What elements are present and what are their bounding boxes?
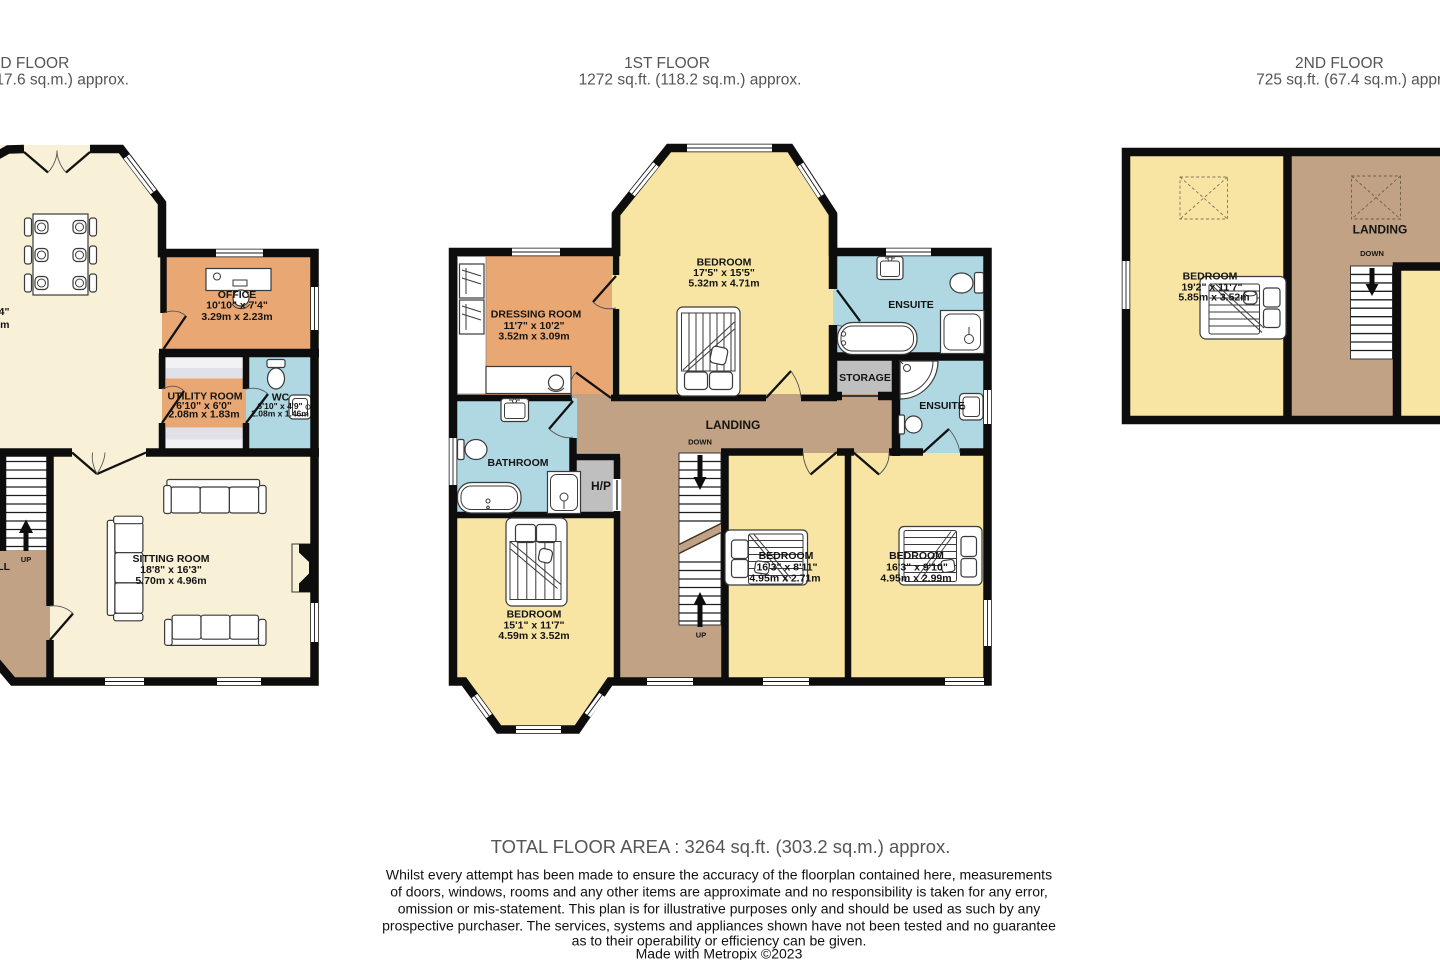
svg-text:TOTAL FLOOR AREA : 3264 sq.ft.: TOTAL FLOOR AREA : 3264 sq.ft. (303.2 sq… (491, 836, 951, 857)
svg-text:ENSUITE: ENSUITE (919, 400, 965, 412)
svg-text:3.29m x 2.23m: 3.29m x 2.23m (201, 311, 272, 323)
svg-text:10'10" x 7'4": 10'10" x 7'4" (206, 300, 268, 312)
svg-text:3.52m x 3.09m: 3.52m x 3.09m (498, 331, 569, 343)
svg-text:1267 sq.ft. (117.6 sq.m.) appr: 1267 sq.ft. (117.6 sq.m.) approx. (0, 72, 129, 89)
svg-text:1272 sq.ft. (118.2 sq.m.) appr: 1272 sq.ft. (118.2 sq.m.) approx. (579, 72, 802, 89)
svg-text:2.08m x 1.83m: 2.08m x 1.83m (168, 408, 239, 420)
svg-text:5.85m x 3.52m: 5.85m x 3.52m (1178, 292, 1249, 304)
svg-text:DOWN: DOWN (688, 438, 712, 447)
svg-text:5.70m x 4.96m: 5.70m x 4.96m (135, 575, 206, 587)
svg-text:ENSUITE: ENSUITE (888, 299, 934, 311)
svg-text:STORAGE: STORAGE (839, 372, 891, 384)
svg-text:4.00m x 3.76m: 4.00m x 3.76m (0, 319, 10, 331)
svg-text:LANDING: LANDING (706, 418, 761, 432)
svg-text:HALL: HALL (0, 561, 11, 573)
svg-text:Whilst every attempt has been: Whilst every attempt has been made to en… (386, 867, 1052, 883)
svg-text:LANDING: LANDING (1353, 223, 1408, 237)
svg-text:UP: UP (696, 631, 706, 640)
svg-text:13'1" x 12'4": 13'1" x 12'4" (0, 306, 10, 318)
svg-text:prospective purchaser. The ser: prospective purchaser. The services, sys… (382, 918, 1056, 934)
svg-text:UP: UP (21, 555, 31, 564)
svg-text:DOWN: DOWN (1360, 249, 1384, 258)
svg-text:4.59m x 3.52m: 4.59m x 3.52m (498, 630, 569, 642)
svg-text:GROUND FLOOR: GROUND FLOOR (0, 55, 69, 72)
svg-text:4.95m x 2.71m: 4.95m x 2.71m (749, 573, 820, 585)
svg-text:BEDROOM: BEDROOM (759, 550, 814, 562)
svg-text:omission or mis-statement. Thi: omission or mis-statement. This plan is … (398, 901, 1041, 917)
svg-text:4.95m x 2.99m: 4.95m x 2.99m (880, 573, 951, 585)
svg-text:BATHROOM: BATHROOM (487, 457, 548, 469)
svg-text:Made with Metropix ©2023: Made with Metropix ©2023 (636, 946, 803, 960)
svg-text:H/P: H/P (591, 479, 611, 493)
svg-text:1ST FLOOR: 1ST FLOOR (624, 55, 710, 72)
svg-text:DRESSING ROOM: DRESSING ROOM (491, 309, 582, 321)
svg-text:2.08m x 1.46m: 2.08m x 1.46m (251, 409, 309, 419)
svg-text:of doors, windows, rooms and a: of doors, windows, rooms and any other i… (390, 884, 1048, 900)
svg-text:725 sq.ft. (67.4 sq.m.) approx: 725 sq.ft. (67.4 sq.m.) approx. (1256, 72, 1440, 89)
svg-text:5.32m x 4.71m: 5.32m x 4.71m (688, 278, 759, 290)
svg-text:2ND FLOOR: 2ND FLOOR (1295, 55, 1384, 72)
svg-text:BEDROOM: BEDROOM (889, 550, 944, 562)
